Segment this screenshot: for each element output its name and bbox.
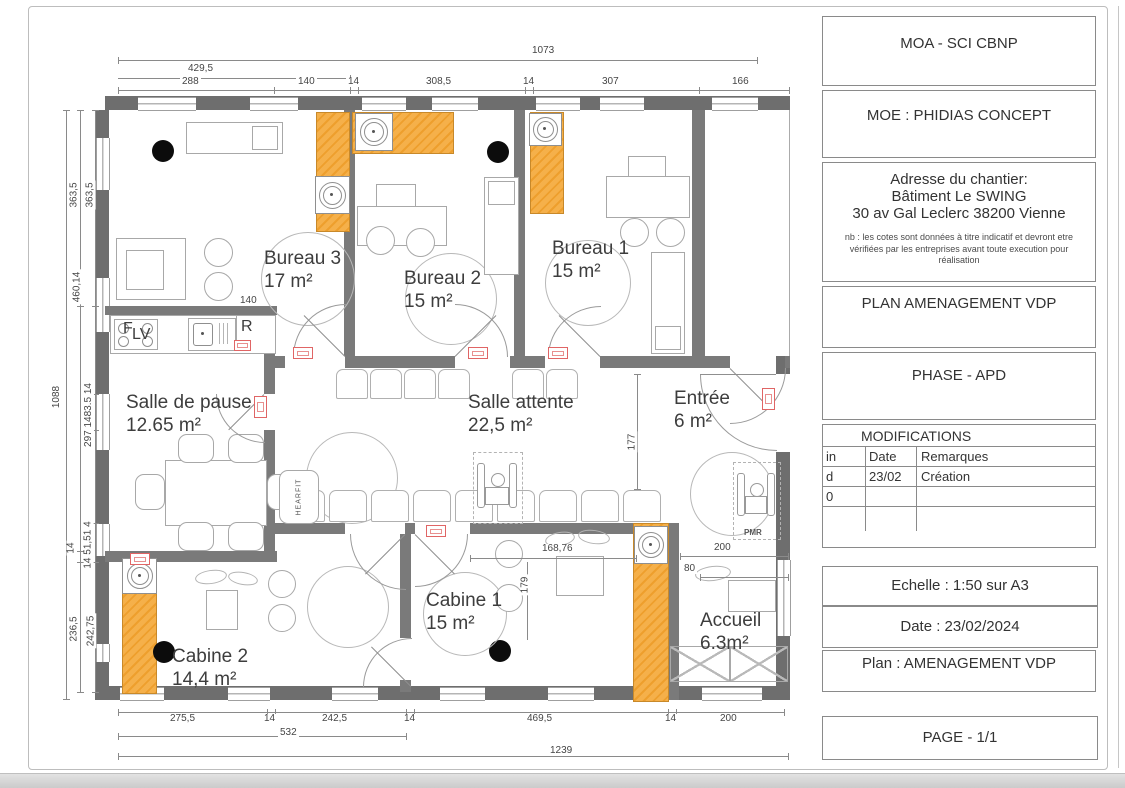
window	[332, 687, 378, 701]
dim-label: 14	[67, 540, 77, 555]
door-tag	[130, 553, 150, 565]
wall-corridor	[510, 356, 545, 368]
sink-icon	[315, 176, 350, 214]
room-area: 15 m²	[426, 613, 502, 636]
desk	[556, 556, 604, 596]
window	[440, 687, 485, 701]
modifications-row: 0	[823, 486, 1095, 506]
window	[96, 278, 110, 332]
room-label-attente: Salle attente22,5 m²	[468, 392, 574, 438]
room-label-cabine1: Cabine 115 m²	[426, 590, 502, 636]
dim-label: 532	[278, 728, 299, 738]
facade-boundary-line	[789, 110, 790, 356]
room-area: 12.65 m²	[126, 415, 252, 438]
window	[777, 560, 791, 636]
room-name: Cabine 2	[172, 646, 248, 669]
window	[96, 644, 110, 662]
dim-label: 242,5	[320, 714, 349, 724]
window	[96, 394, 110, 450]
floor-plan-sheet: F LV R	[0, 0, 1125, 788]
door-tag	[426, 525, 446, 537]
cabinet-box	[488, 181, 515, 205]
moe-text: MOE : PHIDIAS CONCEPT	[867, 107, 1051, 124]
mod-col-remarques: Remarques	[917, 447, 1095, 466]
sheet-bottom-strip	[0, 773, 1125, 788]
pmr-label: PMR	[744, 528, 762, 537]
printer	[728, 580, 776, 612]
dim-line	[470, 558, 636, 559]
credenza-box	[252, 126, 278, 150]
room-label-bureau2: Bureau 215 m²	[404, 268, 481, 314]
room-area: 22,5 m²	[468, 415, 574, 438]
titleblock-page: PAGE - 1/1	[822, 716, 1098, 760]
room-area: 17 m²	[264, 271, 341, 294]
window	[548, 687, 594, 701]
window	[432, 97, 478, 111]
dim-label: 14	[663, 714, 678, 724]
dim-label: 179	[520, 575, 530, 596]
dim-label: 469,5	[525, 714, 554, 724]
waiting-chair	[438, 369, 470, 399]
titleblock-date: Date : 23/02/2024	[822, 606, 1098, 648]
titleblock-moe: MOE : PHIDIAS CONCEPT	[822, 90, 1096, 158]
dim-line	[118, 712, 784, 713]
modifications-row: d 23/02 Création	[823, 466, 1095, 486]
wall-cabines-top	[275, 523, 345, 534]
room-label-bureau3: Bureau 317 m²	[264, 248, 341, 294]
room-area: 15 m²	[404, 291, 481, 314]
room-name: Cabine 1	[426, 590, 502, 613]
dim-label: 14	[262, 714, 277, 724]
column-marker	[487, 141, 509, 163]
entrance-door-leaf	[700, 374, 776, 375]
titleblock-moa: MOA - SCI CBNP	[822, 16, 1096, 86]
dim-line	[700, 577, 788, 578]
chair	[656, 218, 685, 247]
sink-icon	[634, 526, 668, 564]
dim-line	[80, 110, 81, 693]
modifications-row	[823, 506, 1095, 531]
window	[600, 97, 644, 111]
dim-line	[118, 60, 757, 61]
window	[138, 97, 196, 111]
modifications-header-row: in Date Remarques	[823, 446, 1095, 466]
phase-text: PHASE - APD	[912, 367, 1006, 384]
dim-line	[118, 90, 789, 91]
chair	[495, 540, 523, 568]
address-title: Adresse du chantier:	[823, 171, 1095, 188]
window	[362, 97, 406, 111]
plan-title-text: PLAN AMENAGEMENT VDP	[862, 295, 1057, 312]
titleblock-address: Adresse du chantier: Bâtiment Le SWING 3…	[822, 162, 1096, 282]
chair	[204, 272, 233, 301]
dim-label: 363,5	[86, 180, 96, 209]
room-name: Bureau 2	[404, 268, 481, 291]
chair	[135, 474, 165, 510]
room-area: 15 m²	[552, 261, 629, 284]
dim-label: 200	[718, 714, 739, 724]
waiting-chair	[336, 369, 368, 399]
page-text: PAGE - 1/1	[923, 729, 998, 746]
waiting-chair	[413, 490, 451, 522]
wall-bureau1-right	[692, 110, 705, 356]
dim-label: 1239	[548, 746, 574, 756]
address-line1: Bâtiment Le SWING	[823, 188, 1095, 205]
mod-col-date: Date	[866, 447, 917, 466]
address-note: nb : les cotes sont données à titre indi…	[823, 232, 1095, 267]
wall-corridor	[345, 356, 455, 368]
dim-label: 166	[730, 77, 751, 87]
window	[250, 97, 298, 111]
waiting-chair	[623, 490, 661, 522]
cabinet-bureau3-strip	[316, 112, 350, 232]
chair	[406, 228, 435, 257]
appliance-label-lv: LV	[132, 326, 150, 344]
device	[206, 590, 238, 630]
window	[712, 97, 758, 111]
scale-text: Echelle : 1:50 sur A3	[891, 577, 1029, 594]
chair	[268, 570, 296, 598]
door-tag	[468, 347, 488, 359]
door-tag	[254, 396, 267, 418]
wall-kitchen-top	[105, 306, 277, 315]
room-name: Bureau 3	[264, 248, 341, 271]
titleblock-phase: PHASE - APD	[822, 352, 1096, 420]
date-text: Date : 23/02/2024	[900, 618, 1019, 635]
dim-label: 460,14	[72, 270, 82, 305]
room-name: Salle de pause	[126, 392, 252, 415]
chair	[228, 522, 264, 551]
dim-label: 200	[712, 543, 733, 553]
window	[702, 687, 762, 701]
computer	[126, 250, 164, 290]
room-name: Accueil	[700, 610, 761, 633]
waiting-chair	[329, 490, 367, 522]
dim-label: 429,5	[186, 64, 215, 74]
chair	[178, 522, 214, 551]
hearfit-label: HEARFIT	[296, 478, 303, 516]
sink-icon	[529, 113, 562, 146]
dim-line	[66, 110, 67, 700]
dim-label: 80	[682, 564, 697, 574]
titleblock-plan-name: Plan : AMENAGEMENT VDP	[822, 650, 1096, 692]
dim-label: 14	[346, 77, 361, 87]
waiting-chair	[581, 490, 619, 522]
desk	[606, 176, 690, 218]
kitchen-sink-icon	[188, 318, 236, 351]
wall-cabines-top	[405, 523, 415, 534]
moa-text: MOA - SCI CBNP	[900, 35, 1018, 52]
dim-label2: 14 51,51 4	[84, 519, 94, 570]
dim-label: 140	[296, 77, 317, 87]
dim-line	[680, 556, 788, 557]
chair	[204, 238, 233, 267]
door-tag	[234, 340, 251, 351]
chair	[178, 434, 214, 463]
dim-label: 140	[238, 296, 259, 306]
waiting-chair	[370, 369, 402, 399]
dim-label: 307	[600, 77, 621, 87]
dim-label: 168,76	[540, 544, 575, 554]
appliance-label-fridge: R	[241, 318, 253, 336]
chair	[366, 226, 395, 255]
room-name: Bureau 1	[552, 238, 629, 261]
room-label-entree: Entrée6 m²	[674, 388, 730, 434]
room-label-cabine2: Cabine 214,4 m²	[172, 646, 248, 692]
room-name: Salle attente	[468, 392, 574, 415]
window	[536, 97, 580, 111]
plan-name-text: Plan : AMENAGEMENT VDP	[862, 655, 1056, 672]
room-name: Entrée	[674, 388, 730, 411]
dim-label: 14	[521, 77, 536, 87]
modifications-title: MODIFICATIONS	[823, 425, 1095, 446]
sheet-right-edge	[1118, 6, 1119, 768]
room-label-accueil: Accueil6.3m²	[700, 610, 761, 656]
room-area: 6 m²	[674, 411, 730, 434]
dim-label: 288	[180, 77, 201, 87]
wall-corridor	[785, 356, 790, 368]
dim-label: 308,5	[424, 77, 453, 87]
dim-label: 177	[627, 432, 637, 453]
cabinet-box	[655, 326, 681, 350]
dim-label: 14	[402, 714, 417, 724]
dim-label: 297 1483.5 14	[84, 381, 94, 449]
door-tag	[293, 347, 313, 359]
dim-line	[118, 736, 406, 737]
table	[165, 460, 267, 526]
room-area: 14,4 m²	[172, 669, 248, 692]
dim-label: 363,5	[70, 180, 80, 209]
wall-corridor	[600, 356, 730, 368]
window	[96, 138, 110, 190]
hearfit-chair: HEARFIT	[279, 470, 319, 524]
waiting-chair	[539, 490, 577, 522]
dim-label: 1073	[530, 46, 556, 56]
mod-col-ind: in	[823, 447, 866, 466]
room-area: 6.3m²	[700, 633, 761, 656]
dim-label: 275,5	[168, 714, 197, 724]
dim-label: 242,75	[86, 614, 96, 649]
wheelchair-icon	[737, 466, 775, 526]
wheelchair-icon	[477, 456, 517, 518]
chair	[268, 604, 296, 632]
address-line2: 30 av Gal Leclerc 38200 Vienne	[823, 205, 1095, 222]
room-label-bureau1: Bureau 115 m²	[552, 238, 629, 284]
waiting-chair	[404, 369, 436, 399]
titleblock-scale: Echelle : 1:50 sur A3	[822, 566, 1098, 606]
waiting-chair	[371, 490, 409, 522]
dim-line	[118, 756, 788, 757]
door-tag	[548, 347, 568, 359]
room-label-pause: Salle de pause12.65 m²	[126, 392, 252, 438]
dim-label: 236,5	[70, 614, 80, 643]
dim-label: 1088	[52, 384, 62, 410]
door-tag	[762, 388, 775, 410]
titleblock-plan-title: PLAN AMENAGEMENT VDP	[822, 286, 1096, 348]
sink-icon	[355, 113, 393, 151]
titleblock-modifications: MODIFICATIONS in Date Remarques d 23/02 …	[822, 424, 1096, 548]
column-marker	[152, 140, 174, 162]
